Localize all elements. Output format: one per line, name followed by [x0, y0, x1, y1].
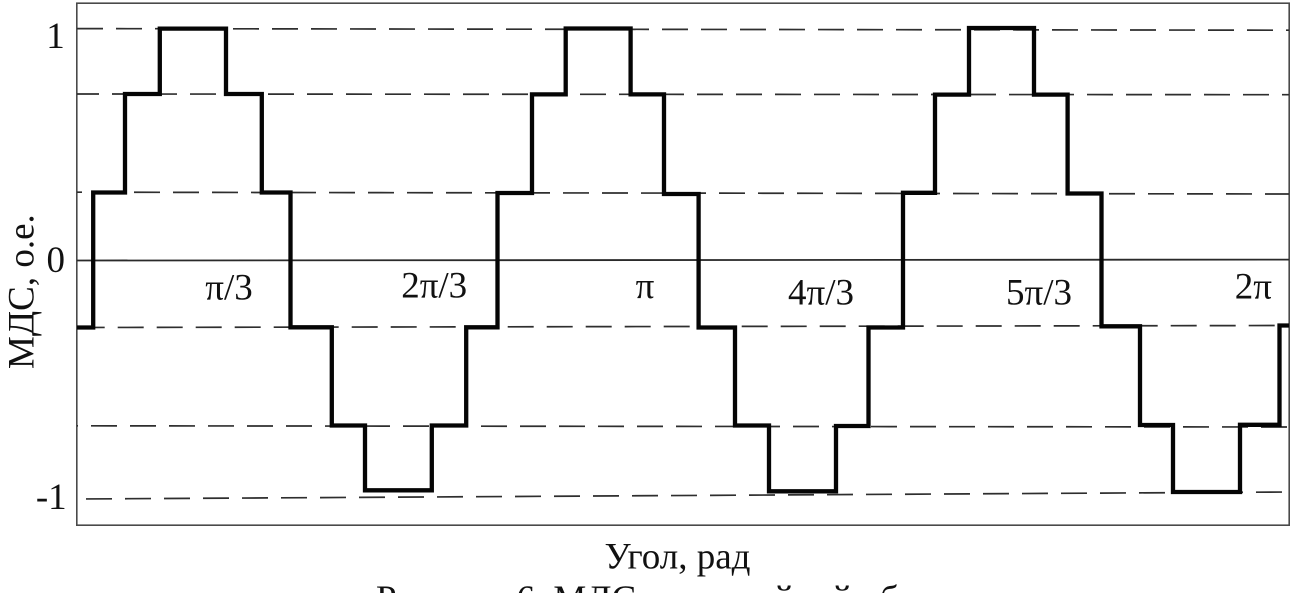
svg-text:-1: -1 — [36, 477, 67, 518]
svg-text:5π/3: 5π/3 — [1006, 273, 1072, 314]
svg-text:Угол, рад: Угол, рад — [605, 537, 751, 578]
svg-text:1: 1 — [46, 16, 65, 57]
svg-text:0: 0 — [47, 240, 66, 281]
svg-text:4π/3: 4π/3 — [788, 273, 854, 314]
svg-text:2π/3: 2π/3 — [401, 266, 467, 307]
svg-text:π/3: π/3 — [205, 268, 252, 309]
svg-text:МДС, о.е.: МДС, о.е. — [2, 214, 43, 369]
svg-text:Рисунок 6. МДС однослойной обм: Рисунок 6. МДС однослойной обмотки — [376, 579, 994, 593]
svg-text:2π: 2π — [1235, 267, 1273, 308]
svg-text:π: π — [636, 266, 655, 307]
